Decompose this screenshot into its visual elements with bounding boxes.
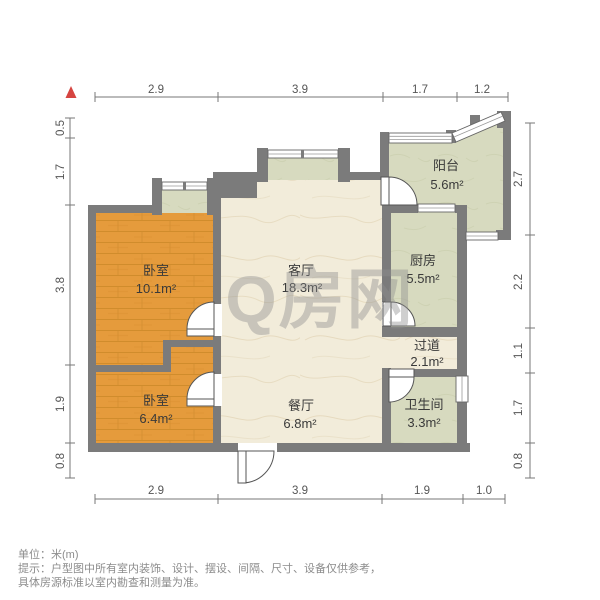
dim-left-1: 0.5 xyxy=(55,120,67,136)
room-label-dining-room: 餐厅 xyxy=(288,398,314,413)
room-area-dining-room: 6.8m² xyxy=(283,416,317,431)
north-arrow-icon xyxy=(66,86,77,98)
bay-window-sill-bedroom xyxy=(162,190,207,213)
wall-segment xyxy=(213,172,221,304)
balcony-bottom-window xyxy=(466,232,498,240)
room-area-balcony: 5.6m² xyxy=(430,177,464,192)
wall-segment xyxy=(152,178,162,215)
dim-right-3: 1.1 xyxy=(513,343,525,359)
wall-segment xyxy=(414,369,457,377)
floor-plan: 卧室 10.1m² 卧室 6.4m² 客厅 18.3m² 餐厅 6.8m² 阳台… xyxy=(0,0,600,600)
entry-door xyxy=(238,443,277,483)
kitchen-balcony-window xyxy=(418,204,455,212)
dim-top-2: 3.9 xyxy=(292,84,308,96)
room-label-balcony: 阳台 xyxy=(433,158,459,173)
wall-segment xyxy=(503,121,511,240)
wall-segment xyxy=(457,205,467,376)
dim-top-3: 1.7 xyxy=(412,84,428,96)
dim-left-5: 0.8 xyxy=(55,453,67,469)
living-bay-window xyxy=(268,150,338,158)
footer-unit-line: 单位：米(m) xyxy=(18,548,381,562)
dim-right-1: 2.7 xyxy=(513,171,525,187)
dim-right-5: 0.8 xyxy=(513,453,525,469)
dim-left-3: 3.8 xyxy=(55,277,67,293)
wall-segment xyxy=(382,369,389,377)
balcony-top-window xyxy=(389,133,452,143)
wall-segment xyxy=(389,205,418,213)
dim-left-4: 1.9 xyxy=(55,396,67,412)
bathroom-window xyxy=(456,376,468,402)
wall-segment xyxy=(257,148,268,182)
wall-segment xyxy=(167,340,213,347)
watermark: Q房网 xyxy=(225,262,414,336)
room-area-hallway: 2.1m² xyxy=(410,354,444,369)
wall-segment xyxy=(96,365,167,372)
dim-right-4: 1.7 xyxy=(513,400,525,416)
dimension-top: 2.9 3.9 1.7 1.2 xyxy=(95,84,508,102)
room-label-bathroom: 卫生间 xyxy=(404,397,443,412)
dim-right-2: 2.2 xyxy=(513,274,525,290)
dimension-left: 0.5 1.7 3.8 1.9 0.8 xyxy=(55,118,75,478)
dim-top-4: 1.2 xyxy=(474,84,490,96)
wall-segment xyxy=(380,132,389,177)
footer-note-line-1: 提示：户型图中所有室内装饰、设计、摆设、间隔、尺寸、设备仅供参考， xyxy=(18,562,381,576)
dim-bottom-4: 1.0 xyxy=(476,485,492,497)
room-area-bathroom: 3.3m² xyxy=(407,415,441,430)
dimension-right: 2.7 2.2 1.1 1.7 0.8 xyxy=(513,123,535,478)
wall-segment xyxy=(88,205,96,451)
dim-bottom-3: 1.9 xyxy=(414,485,430,497)
wall-segment xyxy=(88,443,238,452)
dim-left-2: 1.7 xyxy=(55,164,67,180)
wall-segment xyxy=(88,205,152,213)
wall-segment xyxy=(277,443,470,452)
room-label-bedroom-1: 卧室 xyxy=(143,263,169,278)
room-label-hallway: 过道 xyxy=(414,338,440,353)
dimension-bottom: 2.9 3.9 1.9 1.0 xyxy=(95,485,505,504)
dim-bottom-1: 2.9 xyxy=(148,485,164,497)
bedroom-bay-window xyxy=(162,182,207,190)
room-area-bedroom-2: 6.4m² xyxy=(139,411,173,426)
floor-plan-drawing: 卧室 10.1m² 卧室 6.4m² 客厅 18.3m² 餐厅 6.8m² 阳台… xyxy=(0,0,600,600)
footer-notes: 单位：米(m) 提示：户型图中所有室内装饰、设计、摆设、间隔、尺寸、设备仅供参考… xyxy=(18,548,381,590)
dim-bottom-2: 3.9 xyxy=(292,485,308,497)
bay-window-sill-living xyxy=(268,158,338,180)
room-area-bedroom-1: 10.1m² xyxy=(136,281,177,296)
footer-note-line-2: 具体房源标准以室内勘查和测量为准。 xyxy=(18,576,381,590)
room-label-bedroom-2: 卧室 xyxy=(143,393,169,408)
wall-segment xyxy=(338,148,350,182)
wall-segment xyxy=(213,336,221,374)
dim-top-1: 2.9 xyxy=(148,84,164,96)
